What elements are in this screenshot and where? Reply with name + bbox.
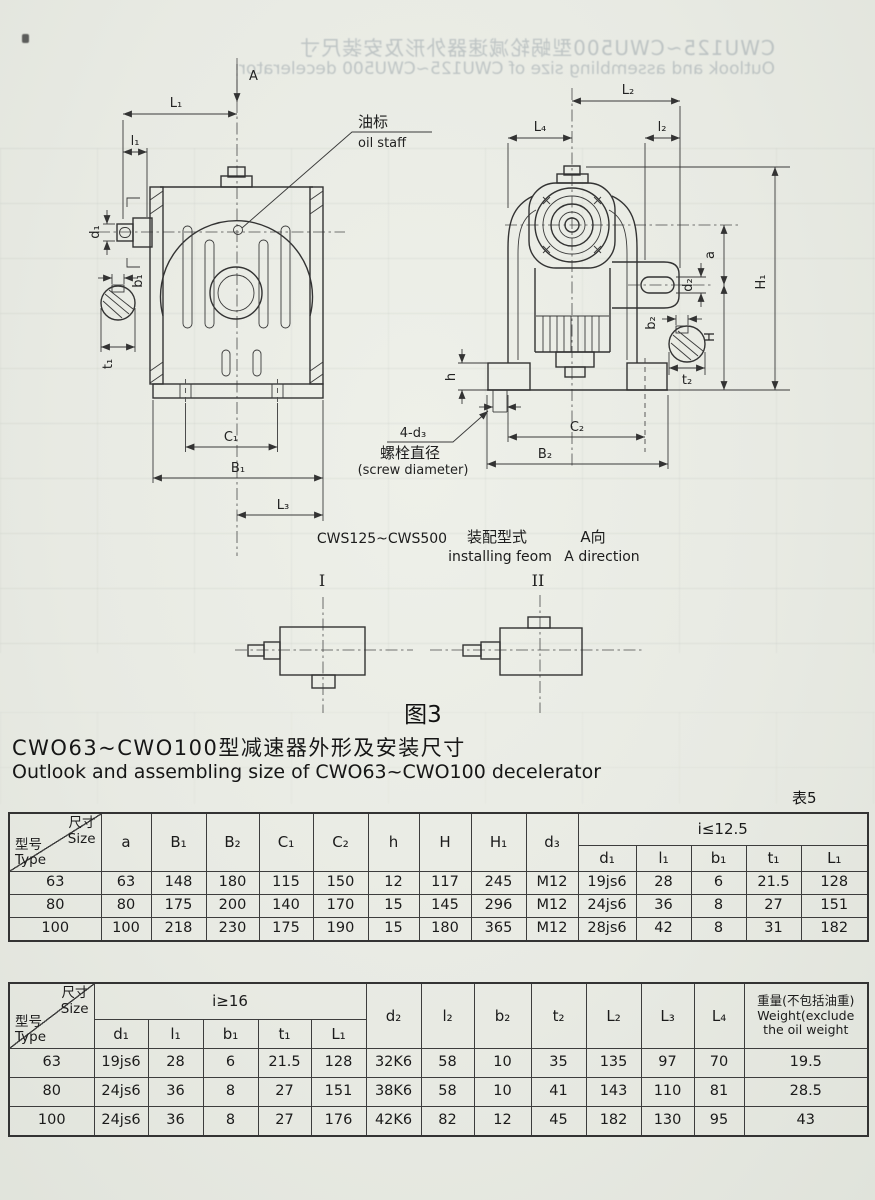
table-cell: 128: [311, 1049, 366, 1078]
dim-label-d2: d₂: [681, 278, 696, 291]
dim-label-d1: d₁: [88, 225, 103, 238]
corner-header: 尺寸 Size 型号 Type: [9, 983, 94, 1049]
col-header: t₂: [531, 983, 586, 1049]
section-title-en: Outlook and assembling size of CWO63~CWO…: [12, 761, 601, 783]
table-cell: 296: [471, 895, 526, 918]
col-header: l₁: [148, 1020, 203, 1049]
table-cell: 27: [746, 895, 801, 918]
table-cell: M12: [526, 918, 578, 942]
table-cell: 19js6: [94, 1049, 148, 1078]
row-type: 100: [9, 1107, 94, 1137]
col-header: L₁: [801, 846, 868, 872]
col-header: L₃: [641, 983, 694, 1049]
weight-header-en1: Weight(exclude: [745, 1009, 868, 1024]
col-header: h: [368, 813, 419, 872]
dim-label-L4: L₄: [534, 120, 546, 135]
row-type: 80: [9, 1078, 94, 1107]
table-cell: 24js6: [94, 1107, 148, 1137]
table-cell: 245: [471, 872, 526, 895]
table-cell: 58: [421, 1049, 474, 1078]
table-cell: 365: [471, 918, 526, 942]
table-cell: 151: [311, 1078, 366, 1107]
table-cell: 190: [313, 918, 368, 942]
table-cell: 8: [691, 918, 746, 942]
table-cell: 15: [368, 918, 419, 942]
corner-size-en: Size: [68, 832, 96, 848]
col-header: t₁: [746, 846, 801, 872]
row-type: 100: [9, 918, 101, 942]
dim-label-a: a: [703, 251, 718, 259]
dim-label-L2: L₂: [622, 83, 634, 98]
form-1-label: I: [319, 571, 325, 590]
table-row: 100 24js6 36 8 27 176 42K6 82 12 45 182 …: [9, 1107, 868, 1137]
corner-size-en: Size: [61, 1002, 89, 1018]
table-cell: 175: [151, 895, 206, 918]
dim-label-t1: t₁: [101, 359, 116, 369]
table-cell: 151: [801, 895, 868, 918]
table-cell: 28.5: [744, 1078, 868, 1107]
table-cell: 15: [368, 895, 419, 918]
table-cell: 63: [101, 872, 151, 895]
table-cell: 8: [203, 1078, 258, 1107]
table-cell: 24js6: [94, 1078, 148, 1107]
table-cell: 8: [691, 895, 746, 918]
table-cell: 28: [636, 872, 691, 895]
table-cell: 28: [148, 1049, 203, 1078]
ratio-group-header: i≤12.5: [578, 813, 868, 846]
view-arrow-label: A: [249, 69, 258, 84]
table-cell: 32K6: [366, 1049, 421, 1078]
col-header: l₂: [421, 983, 474, 1049]
table-cell: 176: [311, 1107, 366, 1137]
section-title-zh: CWO63~CWO100型减速器外形及安装尺寸: [12, 732, 466, 762]
table-number-label: 表5: [792, 787, 817, 808]
table-cell: 41: [531, 1078, 586, 1107]
table-cell: 150: [313, 872, 368, 895]
oil-staff-label-zh: 油标: [358, 113, 388, 131]
oil-staff-label-en: oil staff: [358, 136, 407, 151]
corner-type-en: Type: [15, 853, 46, 869]
screw-label-zh: 螺栓直径: [380, 444, 440, 462]
weight-header: 重量(不包括油重) Weight(exclude the oil weight: [744, 983, 868, 1049]
dim-label-l1: l₁: [131, 134, 140, 149]
dim-label-t2: t₂: [682, 373, 692, 388]
table-cell: 95: [694, 1107, 744, 1137]
table-cell: M12: [526, 895, 578, 918]
table-cell: 70: [694, 1049, 744, 1078]
table-cell: 170: [313, 895, 368, 918]
dim-label-l2: l₂: [658, 120, 667, 135]
table-cell: 31: [746, 918, 801, 942]
col-header: C₂: [313, 813, 368, 872]
col-header: H: [419, 813, 471, 872]
table-cell: 12: [474, 1107, 531, 1137]
table-cell: 6: [691, 872, 746, 895]
table-cell: 117: [419, 872, 471, 895]
dim-label-B2: B₂: [538, 447, 552, 462]
table-cell: 43: [744, 1107, 868, 1137]
dim-label-H1: H₁: [754, 275, 769, 290]
table-row: 80 80 175 200 140 170 15 145 296 M12 24j…: [9, 895, 868, 918]
table-cell: 21.5: [746, 872, 801, 895]
col-header: l₁: [636, 846, 691, 872]
corner-type-en: Type: [15, 1030, 46, 1046]
table-cell: 182: [586, 1107, 641, 1137]
table-cell: 19js6: [578, 872, 636, 895]
table-cell: 12: [368, 872, 419, 895]
ratio-group-header: i≥16: [94, 983, 366, 1020]
row-type: 63: [9, 872, 101, 895]
col-header: d₃: [526, 813, 578, 872]
dim-label-B1: B₁: [231, 461, 245, 476]
col-header: b₁: [203, 1020, 258, 1049]
col-header: d₁: [578, 846, 636, 872]
dim-label-b1: b₁: [131, 274, 146, 287]
table-cell: 21.5: [258, 1049, 311, 1078]
table-cell: 135: [586, 1049, 641, 1078]
form-2-label: II: [532, 571, 545, 590]
dim-label-b2: b₂: [644, 316, 659, 329]
table-cell: 24js6: [578, 895, 636, 918]
table-cell: 148: [151, 872, 206, 895]
col-header: b₂: [474, 983, 531, 1049]
install-form-label-en: installing feom: [448, 549, 552, 565]
a-direction-label-en: A direction: [564, 549, 639, 565]
col-header: B₂: [206, 813, 259, 872]
model-range-label: CWS125~CWS500: [317, 531, 447, 547]
assembly-form-2: II: [430, 571, 645, 713]
dim-label-C1: C₁: [224, 430, 238, 445]
screw-label-en: (screw diameter): [358, 463, 469, 478]
table-cell: 10: [474, 1078, 531, 1107]
table-cell: 58: [421, 1078, 474, 1107]
dim-label-h: h: [444, 373, 459, 381]
table-cell: 36: [636, 895, 691, 918]
col-header: d₁: [94, 1020, 148, 1049]
figure-caption: 图3: [404, 702, 442, 728]
row-type: 63: [9, 1049, 94, 1078]
row-type: 80: [9, 895, 101, 918]
table-cell: 82: [421, 1107, 474, 1137]
table-cell: 27: [258, 1107, 311, 1137]
weight-header-en2: the oil weight: [745, 1023, 868, 1038]
table-row: 80 24js6 36 8 27 151 38K6 58 10 41 143 1…: [9, 1078, 868, 1107]
table-cell: 200: [206, 895, 259, 918]
table-cell: 175: [259, 918, 313, 942]
corner-size-zh: 尺寸: [68, 816, 96, 832]
col-header: t₁: [258, 1020, 311, 1049]
table-cell: 81: [694, 1078, 744, 1107]
col-header: a: [101, 813, 151, 872]
table-cell: 145: [419, 895, 471, 918]
corner-type-zh: 型号: [15, 838, 46, 854]
table-cell: 115: [259, 872, 313, 895]
dimension-table-2: 尺寸 Size 型号 Type i≥16 d₂ l₂ b₂ t₂ L₂ L₃ L…: [8, 982, 869, 1137]
table-cell: 128: [801, 872, 868, 895]
table-cell: 36: [148, 1107, 203, 1137]
table-cell: 97: [641, 1049, 694, 1078]
table-cell: 230: [206, 918, 259, 942]
col-header: B₁: [151, 813, 206, 872]
table-cell: 140: [259, 895, 313, 918]
table-cell: 38K6: [366, 1078, 421, 1107]
col-header: L₂: [586, 983, 641, 1049]
table-cell: 36: [148, 1078, 203, 1107]
side-view: L₂ L₄ l₂: [358, 83, 790, 478]
figure-3-drawing: A L₁ l₁: [0, 0, 875, 730]
dimension-table-1: 尺寸 Size 型号 Type a B₁ B₂ C₁ C₂ h H H₁ d₃ …: [8, 812, 869, 942]
col-header: d₂: [366, 983, 421, 1049]
table-cell: 10: [474, 1049, 531, 1078]
table-cell: M12: [526, 872, 578, 895]
scanned-catalog-page: CWU125~CWU500型蜗轮减速器外形及安装尺寸 Outlook and a…: [0, 0, 875, 1200]
corner-size-zh: 尺寸: [61, 986, 89, 1002]
table-cell: 45: [531, 1107, 586, 1137]
table-cell: 143: [586, 1078, 641, 1107]
table-cell: 19.5: [744, 1049, 868, 1078]
corner-type-zh: 型号: [15, 1015, 46, 1031]
col-header: L₄: [694, 983, 744, 1049]
figure-captions: CWS125~CWS500 装配型式 installing feom A向 A …: [317, 528, 640, 565]
col-header: b₁: [691, 846, 746, 872]
front-view: A L₁ l₁: [88, 58, 432, 556]
table-cell: 42: [636, 918, 691, 942]
table-cell: 110: [641, 1078, 694, 1107]
table-cell: 100: [101, 918, 151, 942]
table-cell: 218: [151, 918, 206, 942]
table-cell: 6: [203, 1049, 258, 1078]
assembly-form-1: I: [235, 571, 413, 713]
table-cell: 35: [531, 1049, 586, 1078]
table-row: 63 19js6 28 6 21.5 128 32K6 58 10 35 135…: [9, 1049, 868, 1078]
corner-header: 尺寸 Size 型号 Type: [9, 813, 101, 872]
dim-label-L3: L₃: [277, 498, 289, 513]
install-form-label-zh: 装配型式: [467, 528, 527, 546]
col-header: C₁: [259, 813, 313, 872]
table-cell: 8: [203, 1107, 258, 1137]
weight-header-zh: 重量(不包括油重): [745, 994, 868, 1009]
table-row: 100 100 218 230 175 190 15 180 365 M12 2…: [9, 918, 868, 942]
dim-label-L1: L₁: [170, 96, 182, 111]
table-cell: 28js6: [578, 918, 636, 942]
a-direction-label-zh: A向: [580, 528, 605, 546]
screw-count-label: 4-d₃: [400, 426, 426, 441]
table-cell: 182: [801, 918, 868, 942]
table-cell: 130: [641, 1107, 694, 1137]
table-row: 63 63 148 180 115 150 12 117 245 M12 19j…: [9, 872, 868, 895]
table-cell: 180: [419, 918, 471, 942]
dim-label-C2: C₂: [570, 420, 584, 435]
col-header: L₁: [311, 1020, 366, 1049]
table-cell: 42K6: [366, 1107, 421, 1137]
table-cell: 27: [258, 1078, 311, 1107]
col-header: H₁: [471, 813, 526, 872]
table-cell: 180: [206, 872, 259, 895]
table-cell: 80: [101, 895, 151, 918]
